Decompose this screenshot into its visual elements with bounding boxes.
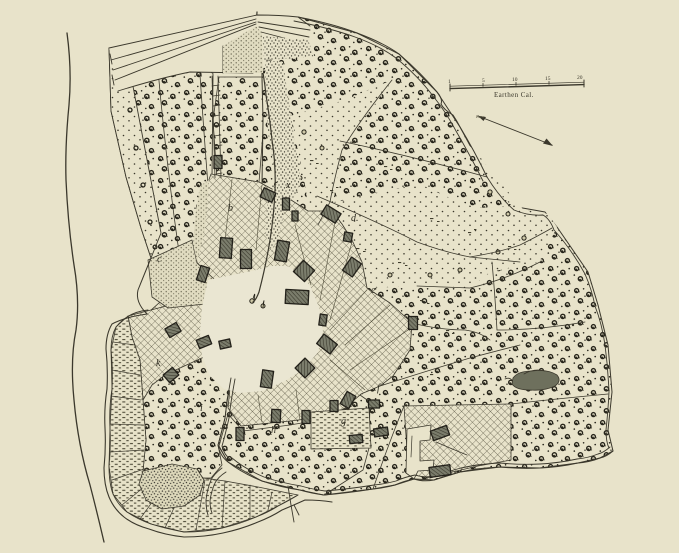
svg-text:h: h [271,425,276,436]
svg-text:x: x [285,180,291,191]
svg-text:Kaw: Kaw [475,114,484,119]
svg-text:i: i [200,403,203,414]
svg-text:b: b [228,203,233,214]
svg-text:d.: d. [351,213,359,224]
svg-text:c: c [157,254,162,265]
svg-text:k: k [156,358,161,369]
svg-text:e: e [371,285,376,296]
svg-text:1: 1 [448,79,451,85]
svg-text:Earthen Cal.: Earthen Cal. [494,91,534,99]
svg-text:15: 15 [545,76,551,82]
svg-text:20: 20 [577,75,583,81]
svg-text:10: 10 [512,77,518,83]
svg-text:5: 5 [482,78,485,84]
svg-text:g: g [341,416,346,427]
